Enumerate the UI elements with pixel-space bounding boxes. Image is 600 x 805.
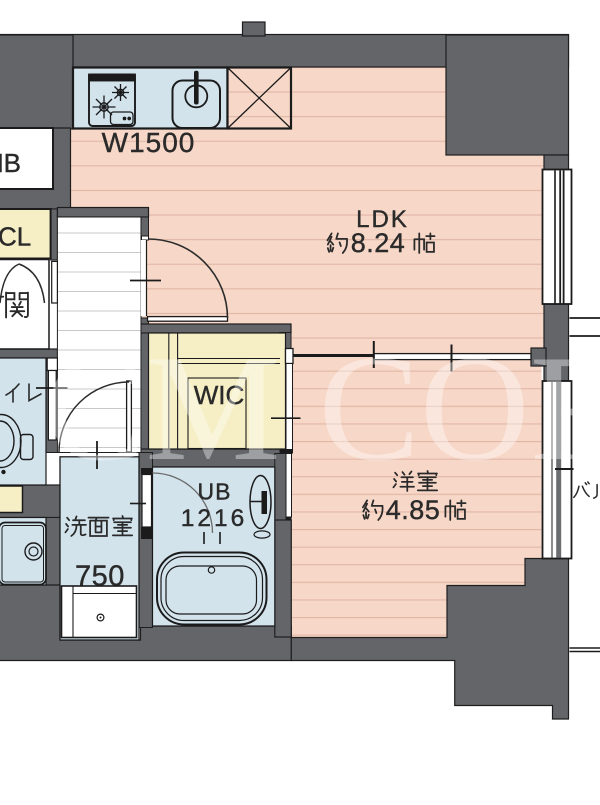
svg-text:CL: CL <box>0 222 31 252</box>
svg-text:4.85: 4.85 <box>386 495 441 525</box>
svg-text:W1500: W1500 <box>102 127 196 158</box>
svg-text:8.24: 8.24 <box>351 228 406 258</box>
svg-text:MB: MB <box>0 148 21 178</box>
svg-text:CM CORP: CM CORP <box>44 324 600 492</box>
svg-text:1216: 1216 <box>181 505 248 532</box>
